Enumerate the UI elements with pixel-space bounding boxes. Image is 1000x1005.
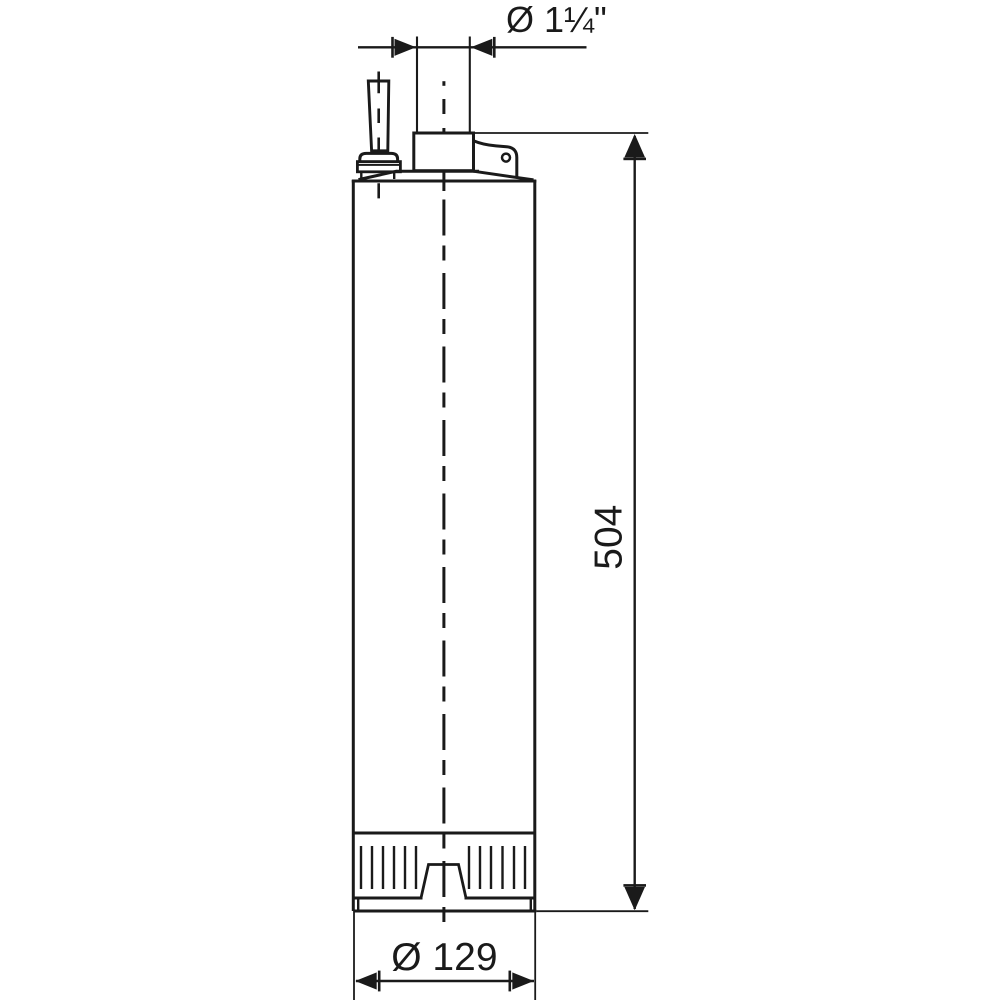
svg-text:Ø 129: Ø 129	[391, 936, 497, 979]
svg-text:Ø 1¼": Ø 1¼"	[506, 0, 607, 40]
svg-text:504: 504	[588, 505, 631, 570]
